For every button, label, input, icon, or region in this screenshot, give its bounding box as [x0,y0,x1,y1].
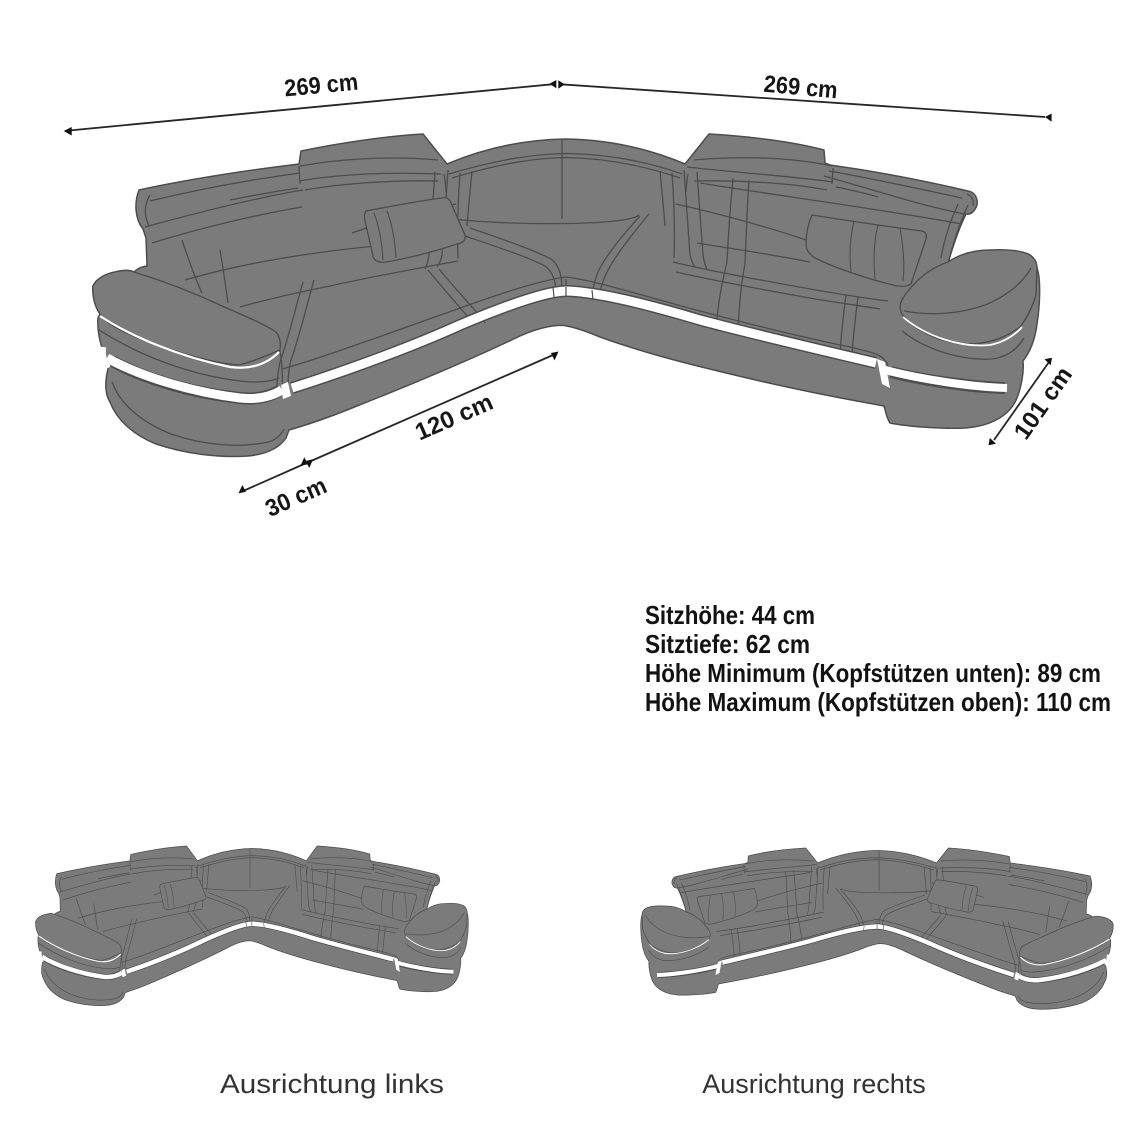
svg-text:Höhe Maximum (Kopfstützen oben: Höhe Maximum (Kopfstützen oben): 110 cm [645,687,1111,717]
svg-text:120 cm: 120 cm [411,389,497,447]
svg-text:269 cm: 269 cm [283,69,359,103]
svg-text:Sitzhöhe: 44 cm: Sitzhöhe: 44 cm [645,600,815,630]
svg-text:Sitztiefe: 62 cm: Sitztiefe: 62 cm [645,629,810,659]
svg-text:Ausrichtung rechts: Ausrichtung rechts [702,1069,926,1099]
svg-text:30 cm: 30 cm [261,472,330,522]
svg-text:Höhe Minimum (Kopfstützen unte: Höhe Minimum (Kopfstützen unten): 89 cm [645,658,1101,688]
svg-text:Ausrichtung links: Ausrichtung links [220,1069,444,1099]
